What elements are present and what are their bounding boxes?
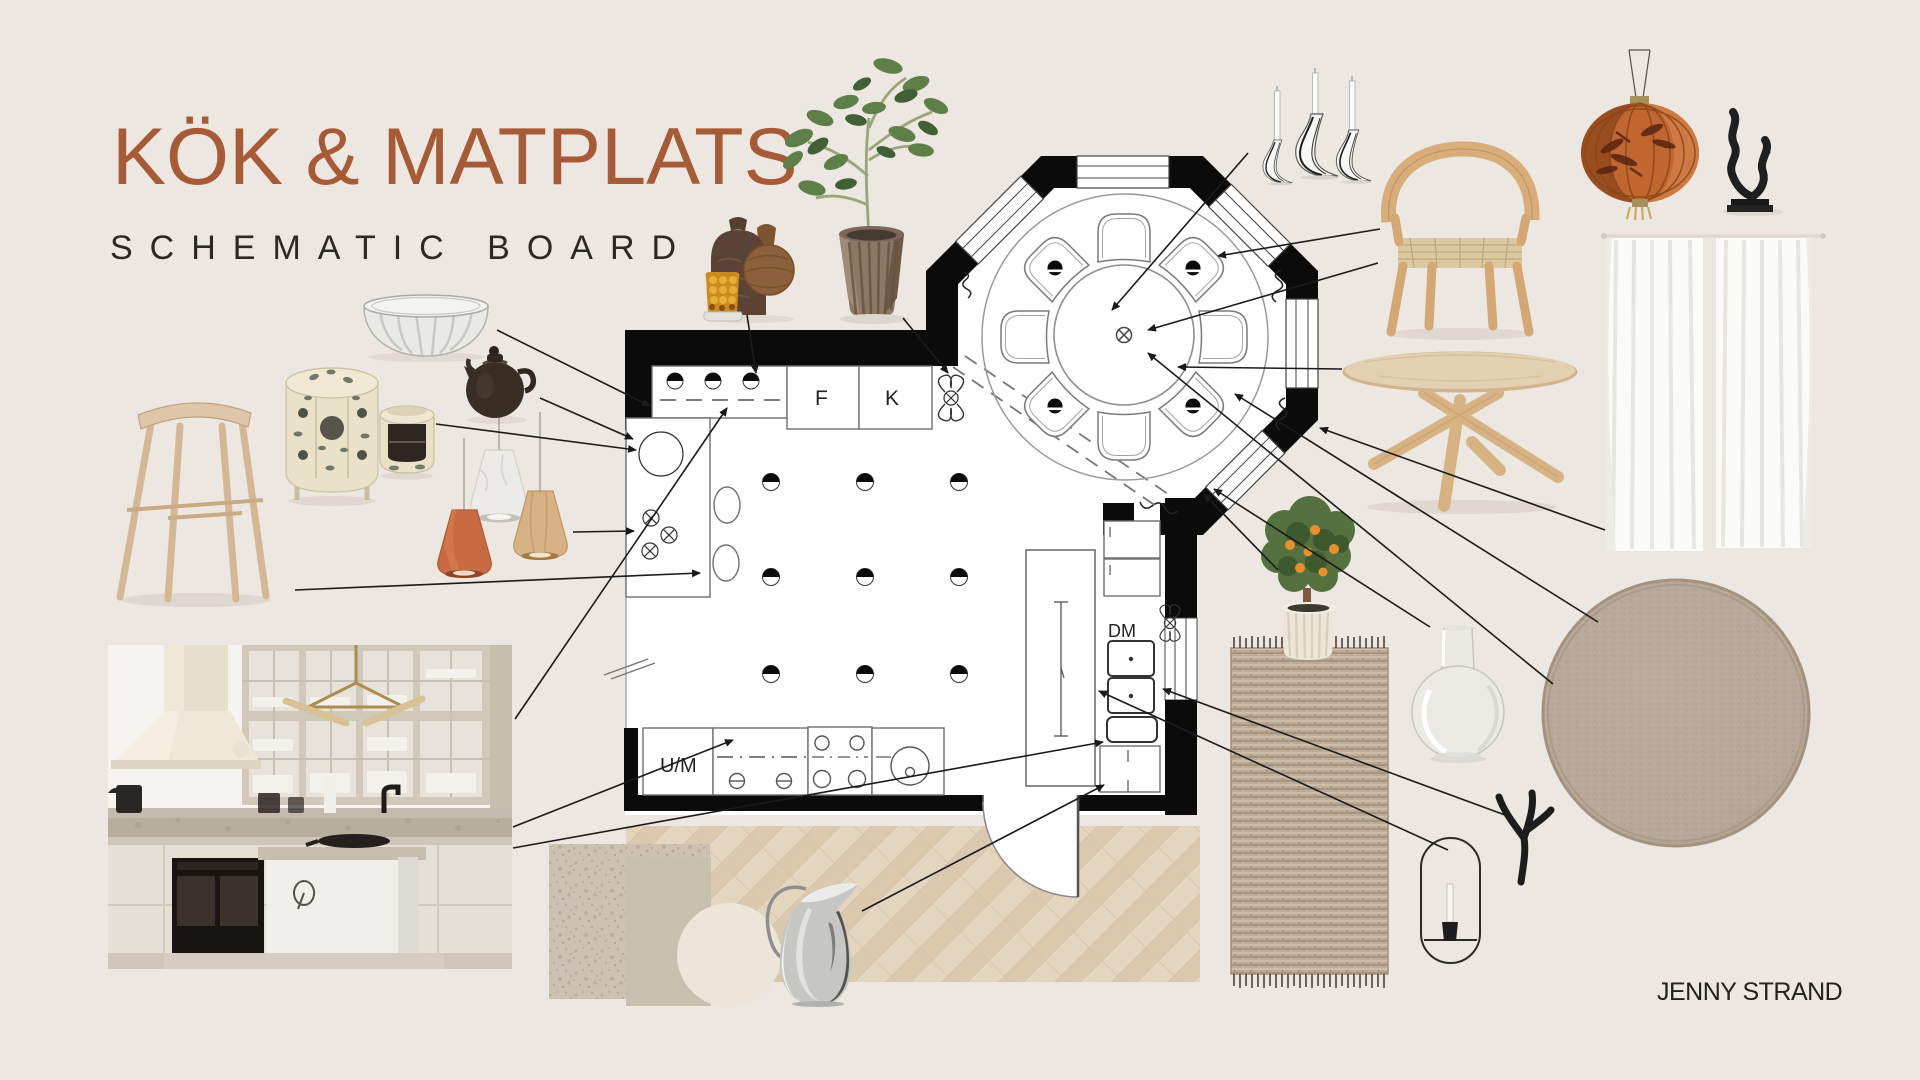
svg-text:JENNY STRAND: JENNY STRAND [1657,978,1842,1006]
svg-text:KÖK & MATPLATS: KÖK & MATPLATS [112,112,798,202]
svg-text:SCHEMATIC BOARD: SCHEMATIC BOARD [110,229,693,267]
svg-text:F: F [815,387,828,410]
svg-text:K: K [885,387,899,410]
svg-text:DM: DM [1108,621,1136,641]
